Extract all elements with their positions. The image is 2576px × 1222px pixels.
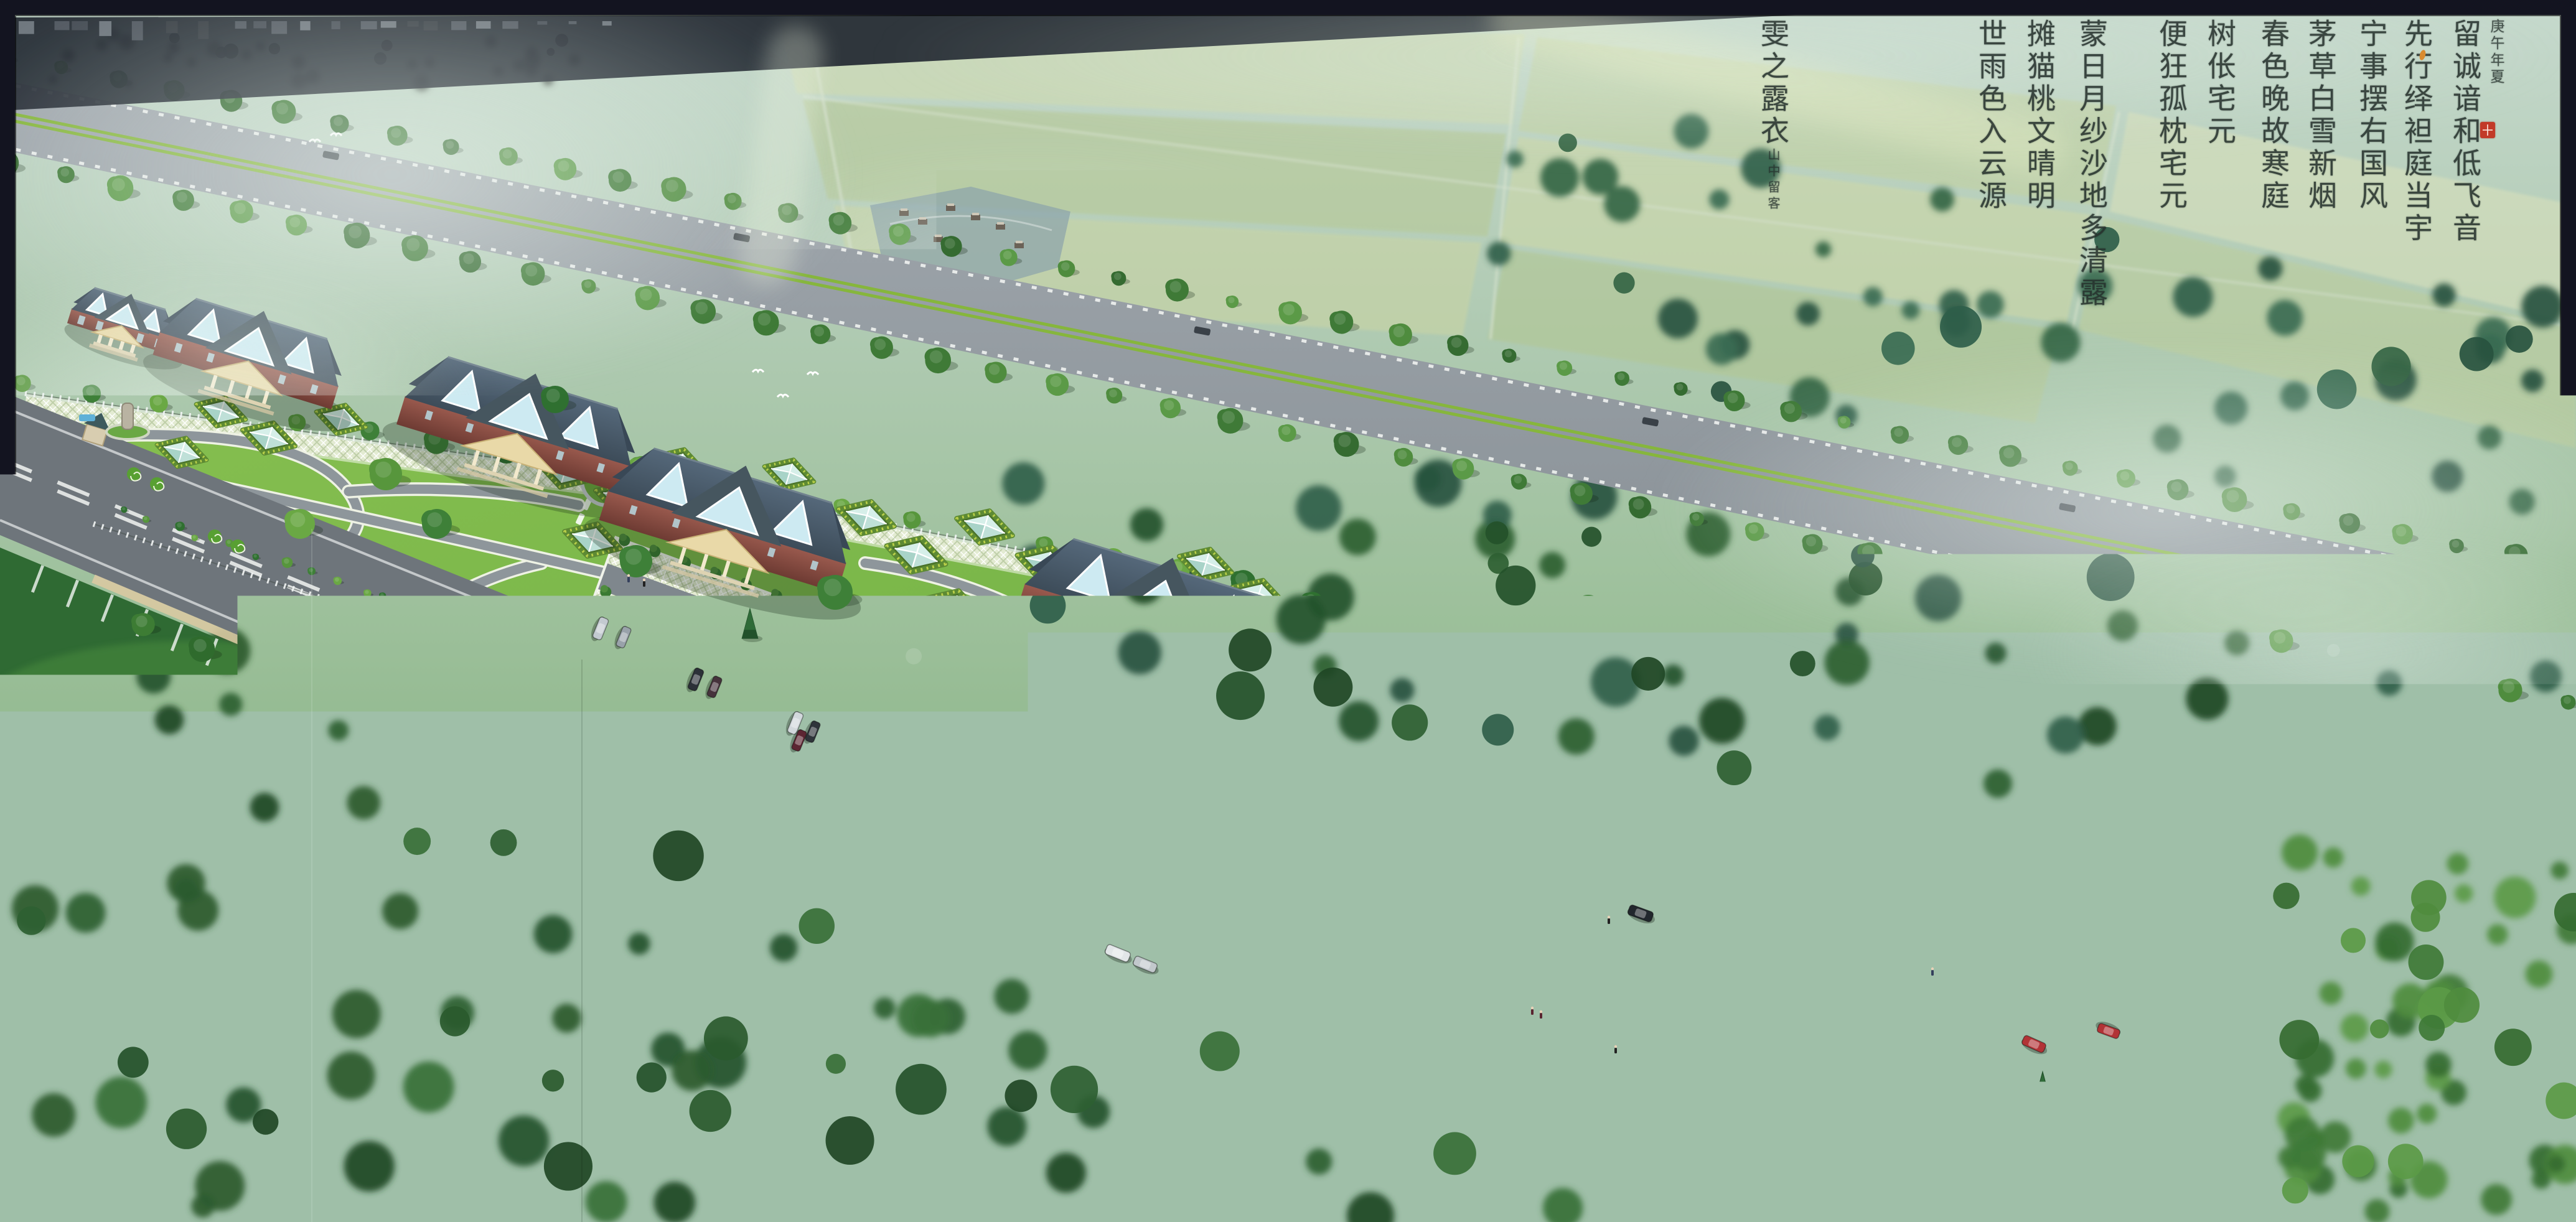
person-icon [1531,1007,1534,1015]
person-icon [1614,1045,1617,1053]
person-icon [1540,1010,1542,1019]
person-icon [1608,916,1610,924]
person-icon [643,579,645,587]
red-seal-stamp [2480,122,2495,138]
person-icon [627,574,630,582]
person-icon [1931,968,1934,976]
aerial-rendering: 安徽省合肥市包河区人文地宫 庚午年夏留诚谙和低飞音先行绎袒庭当宇宁事摆右国风茅草… [0,0,2576,1222]
scene-canvas: 安徽省合肥市包河区人文地宫 [0,0,2576,1222]
